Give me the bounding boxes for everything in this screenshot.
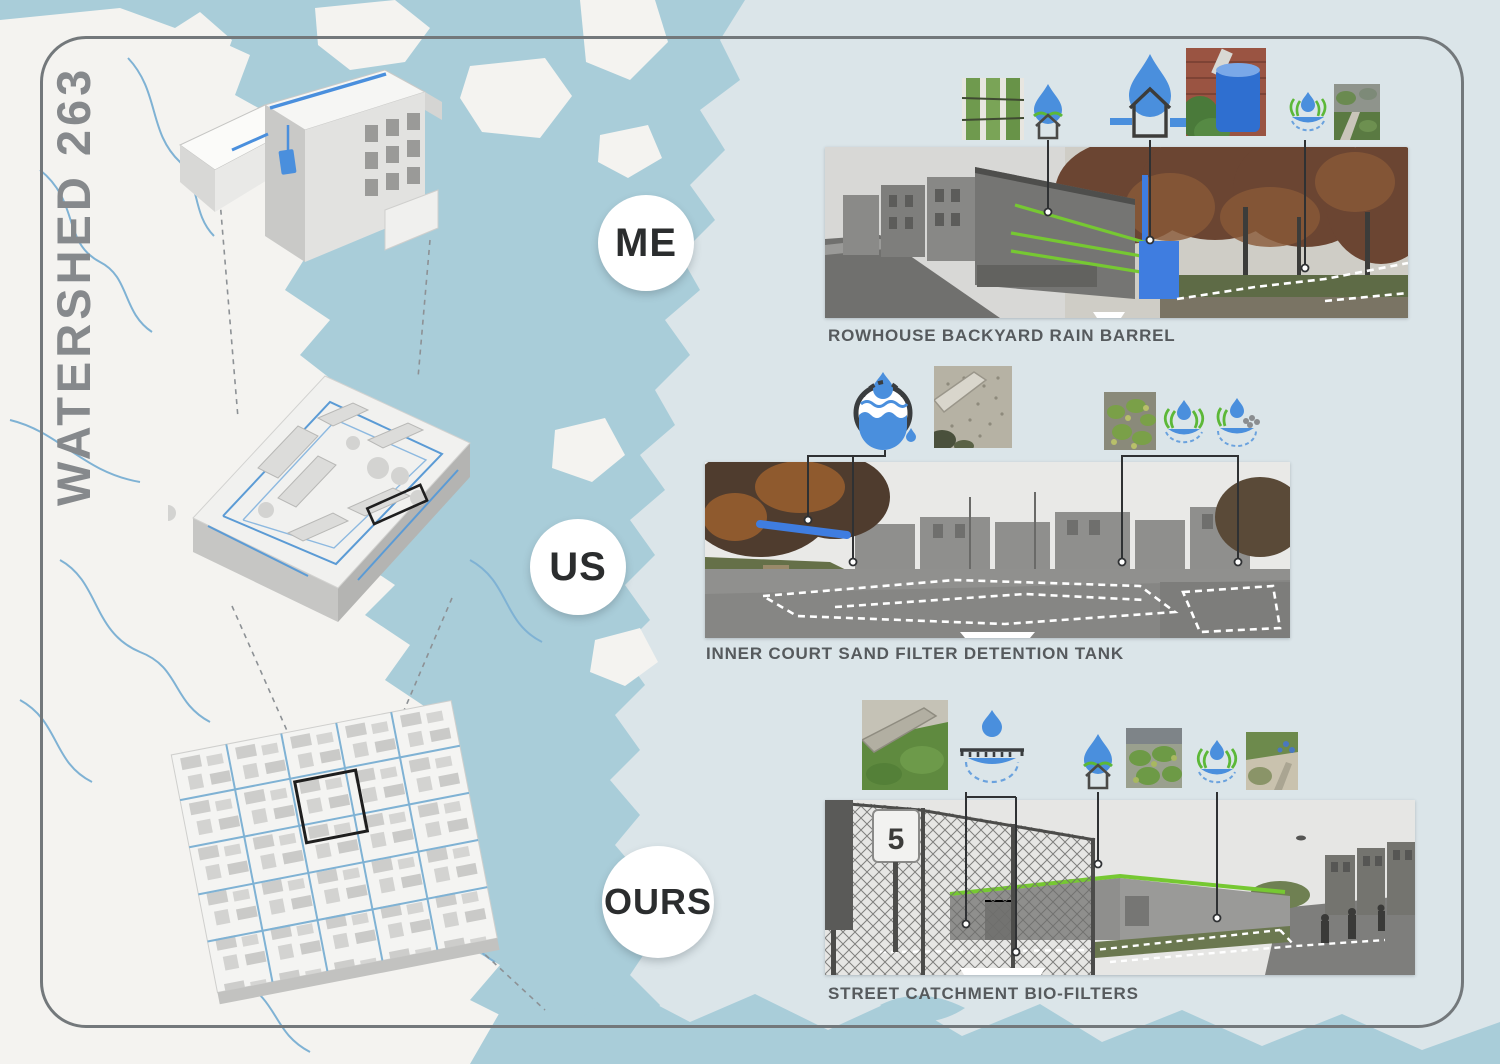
poster-board: ME US OURS <box>0 0 1500 1064</box>
scale-marker-us-label: US <box>549 545 607 590</box>
bio-swale-icon <box>1160 398 1208 450</box>
green-roof-photo <box>862 700 948 790</box>
speed-sign-text: 5 <box>888 823 905 856</box>
rowhouse-street-photo <box>825 147 1408 318</box>
neighborhood-grid-axonometric <box>140 680 525 1015</box>
bio-filter-planting-photo <box>1126 728 1182 788</box>
scale-marker-me: ME <box>598 195 694 291</box>
rain-drop-downspout-house-icon <box>1108 52 1192 140</box>
sand-filter-photo <box>934 366 1012 448</box>
scale-marker-ours-label: OURS <box>604 881 712 923</box>
detention-tank-icon <box>843 366 927 450</box>
panel-me-caption: ROWHOUSE BACKYARD RAIN BARREL <box>828 326 1175 346</box>
bio-swale-small-icon <box>1192 738 1242 790</box>
catchment-basin-icon <box>956 706 1028 790</box>
poster-title: WATERSHED 263 <box>46 66 101 506</box>
planting-photo <box>1104 392 1156 450</box>
scale-marker-us: US <box>530 519 626 615</box>
panel-us-caption: INNER COURT SAND FILTER DETENTION TANK <box>706 644 1124 664</box>
scale-marker-me-label: ME <box>615 221 677 266</box>
backyard-garden-photo <box>1334 84 1380 140</box>
rain-drop-house-icon <box>1022 82 1074 140</box>
rain-drop-house-small-icon <box>1072 732 1124 790</box>
street-catchment-photo: 5 <box>825 800 1415 975</box>
bio-filter-stone-icon <box>1212 396 1262 450</box>
city-block-axonometric <box>168 348 483 636</box>
yard-strips-photo <box>962 78 1024 140</box>
inner-court-photo <box>705 462 1290 638</box>
scale-marker-ours: OURS <box>602 846 714 958</box>
rowhouse-axonometric <box>170 30 470 292</box>
streetscape-photo <box>1246 732 1298 790</box>
panel-ours-caption: STREET CATCHMENT BIO-FILTERS <box>828 984 1139 1004</box>
bio-filter-icon <box>1284 88 1332 138</box>
rain-barrel-photo <box>1186 48 1266 136</box>
